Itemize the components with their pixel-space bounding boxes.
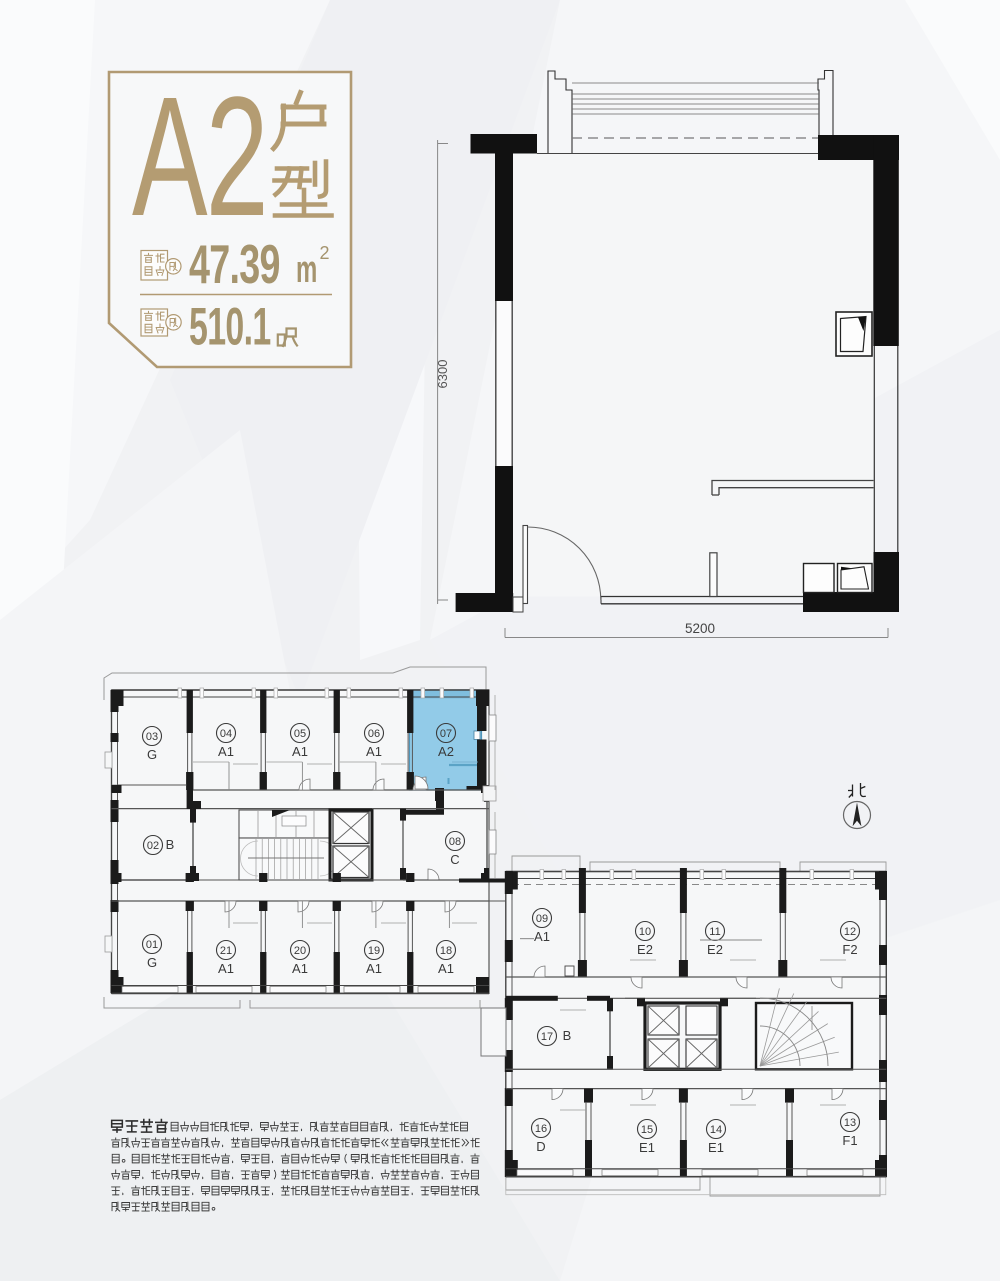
svg-text:2: 2 bbox=[320, 243, 330, 263]
svg-text:D: D bbox=[536, 1139, 545, 1154]
svg-text:A1: A1 bbox=[534, 929, 550, 944]
svg-text:A1: A1 bbox=[218, 961, 234, 976]
svg-text:F1: F1 bbox=[842, 1133, 857, 1148]
svg-text:17: 17 bbox=[541, 1031, 553, 1043]
svg-text:01: 01 bbox=[146, 939, 158, 951]
svg-text:E1: E1 bbox=[639, 1140, 655, 1155]
svg-text:A1: A1 bbox=[438, 961, 454, 976]
svg-text:F2: F2 bbox=[842, 942, 857, 957]
svg-text:A1: A1 bbox=[366, 744, 382, 759]
svg-text:02: 02 bbox=[147, 840, 159, 852]
svg-text:16: 16 bbox=[535, 1123, 547, 1135]
svg-text:6300: 6300 bbox=[435, 360, 450, 389]
svg-text:03: 03 bbox=[146, 731, 158, 743]
svg-text:E2: E2 bbox=[707, 942, 723, 957]
svg-text:05: 05 bbox=[294, 728, 306, 740]
svg-text:21: 21 bbox=[220, 945, 232, 957]
svg-text:09: 09 bbox=[536, 913, 548, 925]
svg-text:510.1: 510.1 bbox=[189, 298, 271, 356]
svg-text:5200: 5200 bbox=[685, 621, 715, 636]
svg-text:12: 12 bbox=[844, 926, 856, 938]
svg-text:13: 13 bbox=[844, 1117, 856, 1129]
svg-text:A1: A1 bbox=[366, 961, 382, 976]
svg-text:A1: A1 bbox=[292, 961, 308, 976]
svg-text:07: 07 bbox=[440, 728, 452, 740]
svg-text:11: 11 bbox=[709, 926, 720, 938]
svg-text:18: 18 bbox=[440, 945, 452, 957]
svg-text:E2: E2 bbox=[637, 942, 653, 957]
svg-text:B: B bbox=[563, 1028, 572, 1043]
svg-text:06: 06 bbox=[368, 728, 380, 740]
svg-text:A1: A1 bbox=[218, 744, 234, 759]
svg-text:C: C bbox=[450, 852, 459, 867]
svg-text:B: B bbox=[166, 837, 175, 852]
svg-text:47.39: 47.39 bbox=[189, 233, 280, 295]
svg-text:m: m bbox=[296, 247, 317, 290]
svg-text:15: 15 bbox=[641, 1124, 653, 1136]
svg-text:A2: A2 bbox=[132, 61, 267, 252]
svg-text:19: 19 bbox=[368, 945, 380, 957]
svg-text:14: 14 bbox=[710, 1124, 722, 1136]
svg-text:G: G bbox=[147, 955, 157, 970]
svg-text:04: 04 bbox=[220, 728, 232, 740]
svg-text:10: 10 bbox=[639, 926, 651, 938]
svg-text:A1: A1 bbox=[292, 744, 308, 759]
svg-text:E1: E1 bbox=[708, 1140, 724, 1155]
svg-text:20: 20 bbox=[294, 945, 306, 957]
svg-text:08: 08 bbox=[449, 836, 461, 848]
svg-text:G: G bbox=[147, 747, 157, 762]
svg-text:A2: A2 bbox=[438, 744, 454, 759]
